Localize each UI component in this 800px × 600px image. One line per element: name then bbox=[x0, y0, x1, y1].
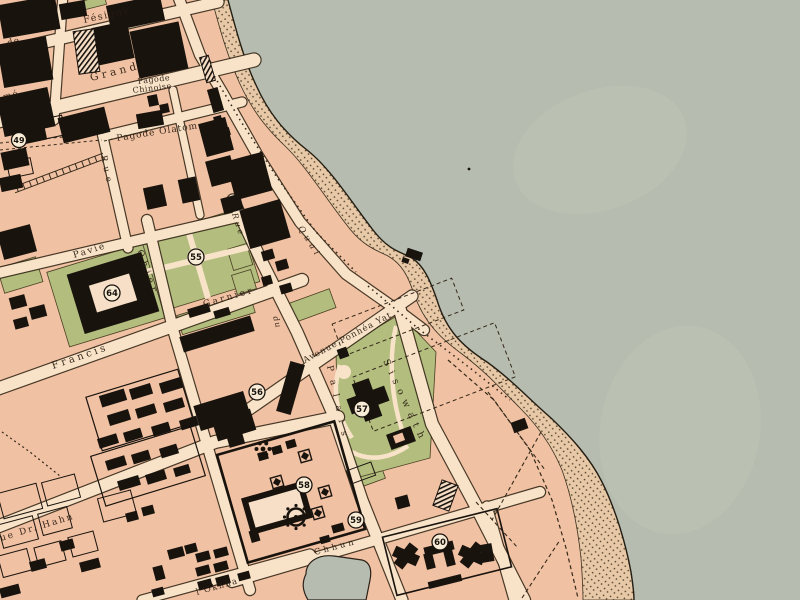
landmark-circle-57: 57 bbox=[354, 401, 370, 417]
gear-dot bbox=[286, 507, 289, 510]
landmark-number: 60 bbox=[434, 538, 446, 548]
gear-dot bbox=[294, 527, 297, 530]
landmark-circle-49: 49 bbox=[12, 133, 27, 148]
building bbox=[159, 103, 170, 114]
gear-dot bbox=[294, 504, 297, 507]
gear-dot bbox=[303, 524, 306, 527]
flower-dot bbox=[255, 447, 259, 451]
flower-dot bbox=[264, 441, 268, 445]
flower-dot bbox=[258, 453, 262, 457]
landmark-number: 59 bbox=[350, 516, 362, 526]
historical-map: deméFésignyGrandPagodeChinoisePagode Ola… bbox=[0, 0, 800, 600]
landmark-circle-60: 60 bbox=[432, 534, 448, 550]
landmark-circle-59: 59 bbox=[348, 512, 364, 528]
water-speck bbox=[468, 168, 471, 171]
landmark-number: 64 bbox=[106, 289, 118, 299]
gear-dot bbox=[283, 515, 286, 518]
flower-dot bbox=[268, 447, 272, 451]
flower-dot bbox=[258, 441, 262, 445]
gear-dot bbox=[286, 524, 289, 527]
landmark-number: 49 bbox=[13, 136, 25, 145]
gear-dot bbox=[306, 515, 309, 518]
landmark-number: 55 bbox=[190, 253, 202, 263]
landmark-circle-56: 56 bbox=[249, 384, 265, 400]
landmark-circle-55: 55 bbox=[188, 249, 204, 265]
landmark-number: 56 bbox=[251, 388, 263, 398]
landmark-circle-64: 64 bbox=[104, 285, 120, 301]
flower-dot bbox=[264, 453, 268, 457]
landmark-number: 58 bbox=[298, 481, 310, 491]
map-canvas: deméFésignyGrandPagodeChinoisePagode Ola… bbox=[0, 0, 800, 600]
landmark-number: 57 bbox=[356, 405, 368, 415]
landmark-circle-58: 58 bbox=[296, 477, 312, 493]
flower-building bbox=[261, 447, 266, 452]
pond bbox=[303, 556, 371, 600]
gear-dot bbox=[303, 507, 306, 510]
garden-pond bbox=[337, 365, 351, 379]
